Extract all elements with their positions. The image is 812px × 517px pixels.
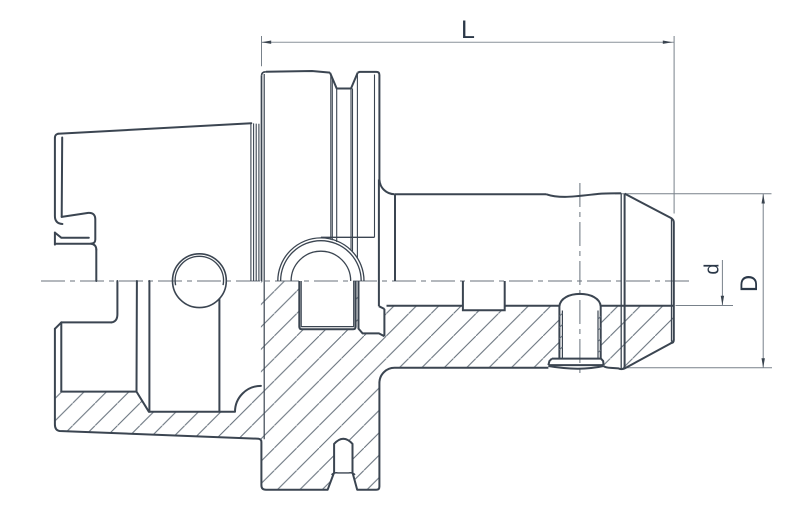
svg-text:d: d [702,263,724,274]
svg-text:L: L [461,16,475,44]
svg-text:D: D [736,275,763,292]
